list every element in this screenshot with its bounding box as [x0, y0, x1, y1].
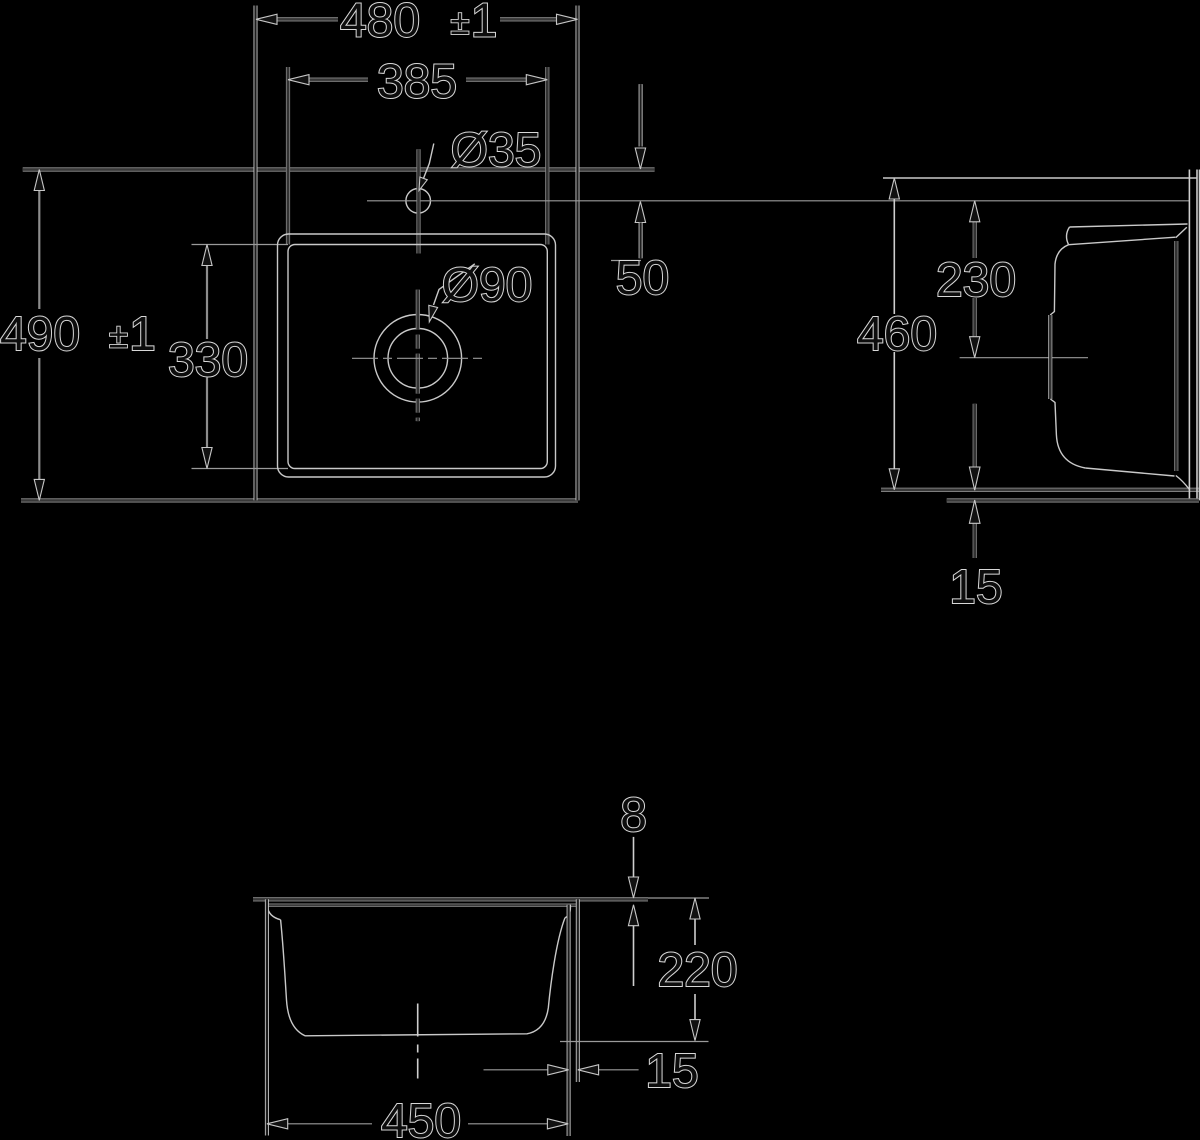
svg-text:490: 490 [0, 308, 80, 361]
svg-text:450: 450 [381, 1095, 461, 1140]
svg-text:Ø90: Ø90 [442, 259, 533, 312]
svg-text:8: 8 [620, 789, 647, 842]
svg-text:15: 15 [645, 1045, 698, 1098]
svg-text:220: 220 [657, 944, 737, 997]
svg-text:15: 15 [949, 561, 1002, 614]
svg-text:460: 460 [857, 308, 937, 361]
svg-text:230: 230 [936, 254, 1016, 307]
svg-text:1: 1 [471, 0, 498, 48]
svg-text:330: 330 [168, 334, 248, 387]
svg-text:385: 385 [377, 56, 457, 109]
svg-text:1: 1 [129, 308, 156, 361]
svg-text:480: 480 [340, 0, 420, 48]
svg-text:±: ± [450, 3, 469, 42]
svg-text:Ø35: Ø35 [451, 124, 542, 177]
svg-text:±: ± [109, 317, 128, 356]
svg-text:50: 50 [616, 252, 669, 305]
